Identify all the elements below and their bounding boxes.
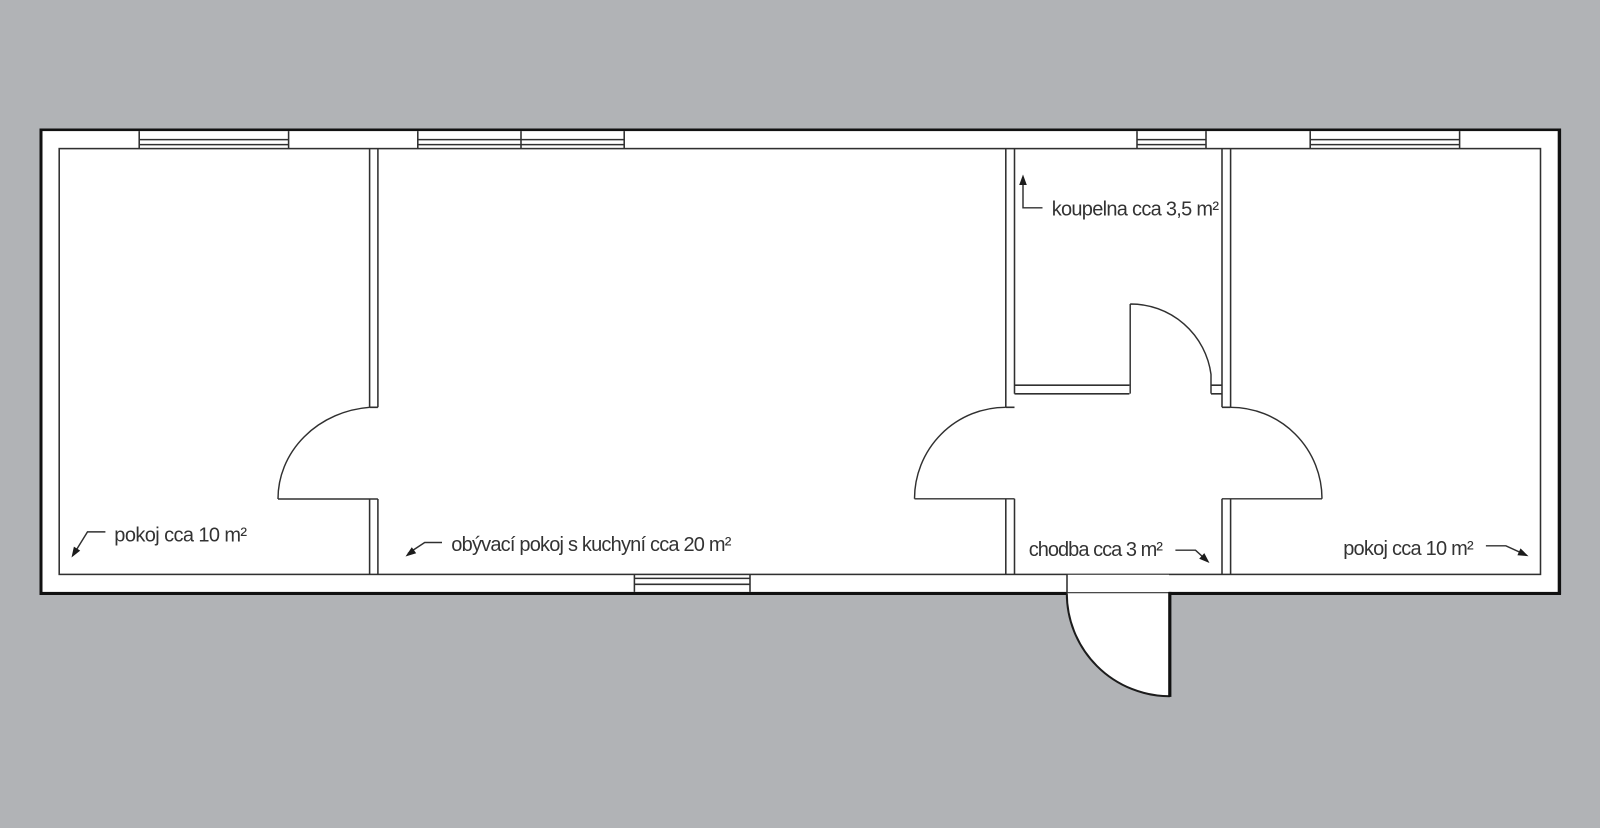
svg-text:pokoj cca 10 m²: pokoj cca 10 m²: [114, 525, 247, 547]
svg-text:chodba cca 3 m²: chodba cca 3 m²: [1029, 539, 1164, 561]
svg-text:pokoj cca 10 m²: pokoj cca 10 m²: [1343, 538, 1474, 560]
svg-text:koupelna cca 3,5 m²: koupelna cca 3,5 m²: [1052, 199, 1220, 221]
svg-text:obývací pokoj s kuchyní cca 20: obývací pokoj s kuchyní cca 20 m²: [451, 534, 731, 556]
